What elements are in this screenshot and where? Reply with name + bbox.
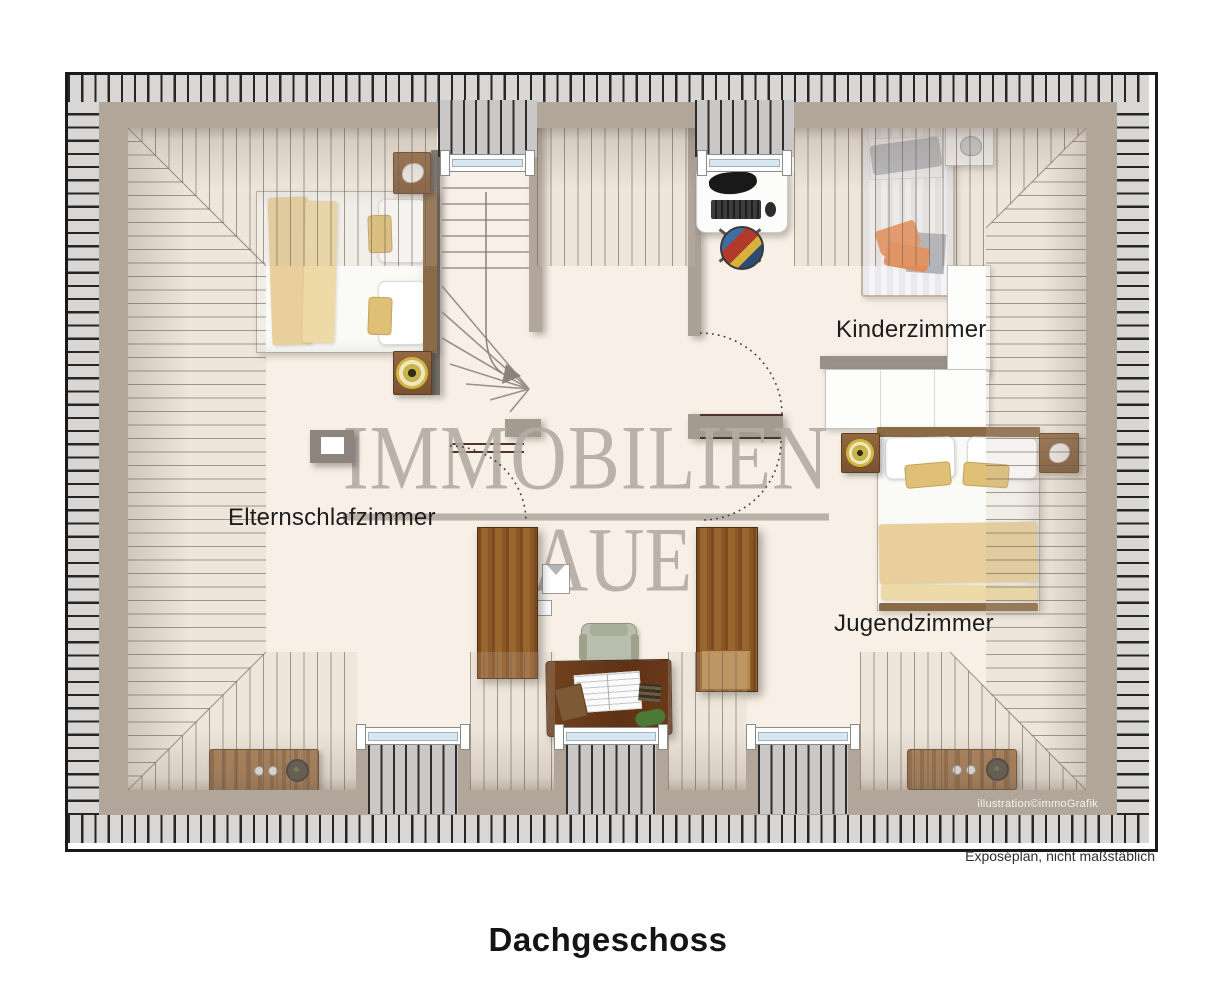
nightstand: [841, 433, 880, 473]
dormer-roof: [695, 100, 794, 157]
desk-chair: [712, 224, 768, 270]
book-spine: [607, 674, 611, 710]
youth-double-bed: [877, 427, 1040, 611]
room-label-jugendzimmer: Jugendzimmer: [834, 610, 994, 638]
window-post: [460, 724, 470, 750]
window-post: [356, 724, 366, 750]
window-post: [440, 150, 450, 176]
window-post: [782, 150, 792, 176]
bed-headboard: [877, 427, 1040, 437]
chair-headrest: [590, 624, 628, 636]
sideboard: [310, 430, 354, 463]
exterior-wall-top: [99, 102, 1117, 128]
decor-shell: [1049, 443, 1070, 463]
window-glass: [758, 732, 848, 741]
window-glass: [566, 732, 656, 741]
window: [356, 724, 470, 750]
low-dresser: [907, 749, 1017, 790]
dresser-knob: [966, 765, 976, 775]
roof-eaves-left: [68, 102, 99, 815]
bed-cushion: [962, 461, 1010, 488]
roof-eaves-top: [68, 75, 1149, 102]
pencil-box: [638, 683, 661, 702]
chair-seat: [720, 226, 764, 270]
wooden-wardrobe: [477, 527, 538, 679]
page-title: Dachgeschoss: [0, 921, 1216, 959]
window-glass: [368, 732, 458, 741]
chair-armrest: [579, 634, 587, 660]
chair-armrest: [631, 634, 639, 660]
chimney: [542, 564, 570, 594]
roof-eaves-bottom: [68, 815, 1149, 843]
nightstand: [1039, 433, 1079, 473]
exterior-wall-right: [1086, 102, 1117, 815]
table-lamp: [846, 439, 874, 467]
mouse: [765, 202, 776, 217]
window-post: [658, 724, 668, 750]
daybed: [861, 125, 955, 297]
decor-shell: [402, 163, 424, 183]
room-label-elternschlafzimmer: Elternschlafzimmer: [228, 504, 436, 532]
wooden-wardrobe: [696, 527, 758, 692]
nightstand: [393, 351, 432, 395]
sideboard-front: [321, 437, 344, 454]
wall-shelf: [945, 127, 994, 166]
dormer-roof: [438, 100, 537, 157]
dormer-roof: [356, 744, 470, 814]
roof-eaves-right: [1117, 102, 1149, 815]
dresser-knob: [952, 765, 962, 775]
window-glass: [709, 159, 780, 167]
wardrobe-door-seam: [880, 370, 881, 428]
window-post: [697, 150, 707, 176]
decor-helmet: [960, 136, 982, 156]
room-label-kinderzimmer: Kinderzimmer: [836, 316, 986, 344]
bed-blanket: [302, 201, 338, 344]
decor-bowl: [286, 759, 309, 782]
bed-blanket: [881, 584, 1037, 601]
bed-cushion: [367, 215, 392, 254]
window-post: [850, 724, 860, 750]
decor-bowl: [986, 758, 1009, 781]
window: [440, 150, 535, 176]
bed-blanket: [878, 522, 1037, 585]
window: [697, 150, 792, 176]
dresser-knob: [268, 766, 278, 776]
white-wardrobe: [825, 369, 990, 429]
window-post: [525, 150, 535, 176]
wardrobe-door-seam: [934, 370, 935, 428]
dormer-roof: [746, 744, 860, 814]
window: [554, 724, 668, 750]
floorplan-page: IMMOBILIEN RAUE: [0, 0, 1216, 1000]
keyboard: [711, 200, 761, 219]
nightstand: [393, 152, 431, 194]
exterior-wall-left: [99, 102, 128, 815]
parents-double-bed: [256, 191, 437, 353]
illustration-credit: illustration©immoGrafik: [977, 798, 1098, 810]
chimney-small: [536, 600, 552, 616]
dresser-knob: [254, 766, 264, 776]
bed-cushion: [904, 461, 952, 489]
window: [746, 724, 860, 750]
watermark: IMMOBILIEN RAUE: [340, 412, 832, 592]
window-post: [554, 724, 564, 750]
low-dresser: [209, 749, 319, 792]
window-post: [746, 724, 756, 750]
wardrobe-lower-door: [701, 650, 751, 690]
dormer-roof: [554, 744, 668, 814]
table-lamp: [396, 357, 428, 389]
plan-disclaimer: Exposéplan, nicht maßstäblich: [965, 848, 1155, 864]
bed-cushion: [367, 297, 392, 336]
window-glass: [452, 159, 523, 167]
bed-headboard: [423, 191, 437, 353]
chimney-flue: [547, 565, 565, 575]
